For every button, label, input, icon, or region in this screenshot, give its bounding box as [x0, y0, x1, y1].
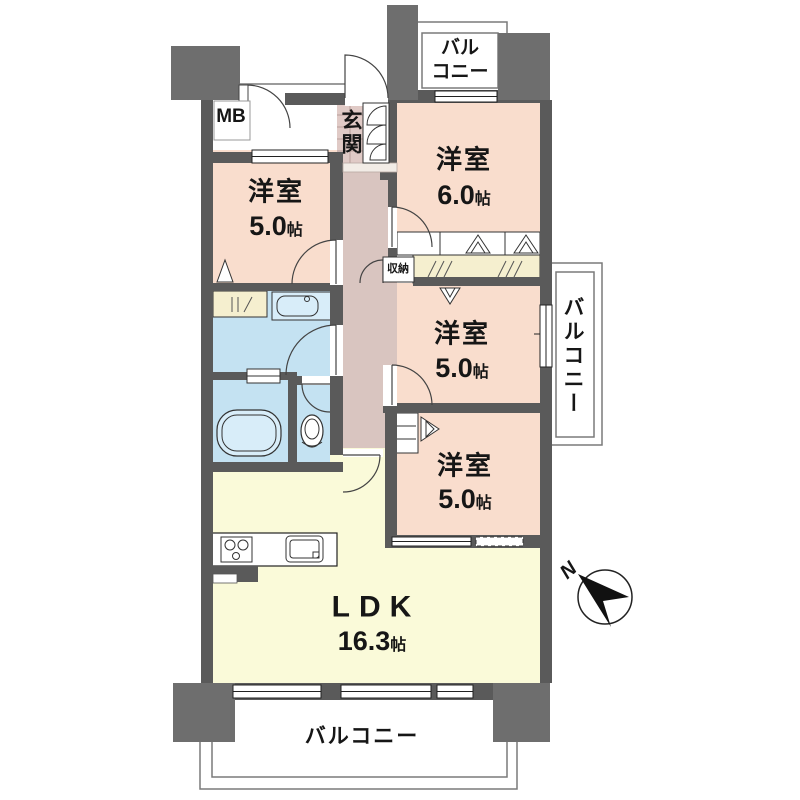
pillar-top-left [171, 46, 240, 100]
meter-box-door-arc [247, 85, 290, 128]
bedroom-top-right-size: 6.0帖 [437, 181, 491, 209]
bedroom-top-left-name: 洋室 [248, 178, 304, 205]
entrance-door-arc [345, 55, 388, 98]
toilet-icon [301, 415, 323, 447]
bedroom-bottom-right-size: 5.0帖 [438, 485, 492, 513]
balcony-right-label: バルコニー [561, 296, 583, 416]
entrance-label: 玄関 [339, 109, 361, 157]
bedroom-bottom-right-name: 洋室 [437, 452, 493, 479]
ldk-size: 16.3帖 [338, 627, 407, 655]
entrance-step [343, 163, 397, 172]
balcony-bottom-label: バルコニー [305, 726, 420, 748]
storage-label: 収納 [387, 264, 409, 276]
wall-entrance-top [285, 93, 347, 105]
closet-bedroom-top-left [213, 291, 267, 317]
bathtub-icon [217, 410, 281, 456]
pillar-bottom-left [173, 683, 235, 742]
compass [578, 570, 632, 627]
bedroom-mid-right-name: 洋室 [434, 320, 490, 347]
balcony-top-label: バル コニー [431, 36, 488, 84]
bedroom-top-left-size: 5.0帖 [249, 212, 303, 240]
wall-left [201, 95, 213, 683]
pillar-bottom-right [493, 683, 550, 742]
pillar-top-right [498, 33, 550, 100]
floor-plan-graphics [0, 0, 800, 800]
meter-box-label: MB [216, 107, 246, 127]
wall-right [540, 100, 552, 683]
bedroom-mid-right-size: 5.0帖 [435, 354, 489, 382]
pillar-top-center [387, 5, 418, 100]
floor-plan: 洋室 5.0帖 洋室 6.0帖 洋室 5.0帖 洋室 5.0帖 LDK 16.3… [0, 0, 800, 800]
ldk-name: LDK [332, 591, 421, 623]
sliding-door-window [476, 537, 523, 546]
bedroom-top-right-name: 洋室 [436, 146, 492, 173]
stove-icon [221, 537, 252, 562]
